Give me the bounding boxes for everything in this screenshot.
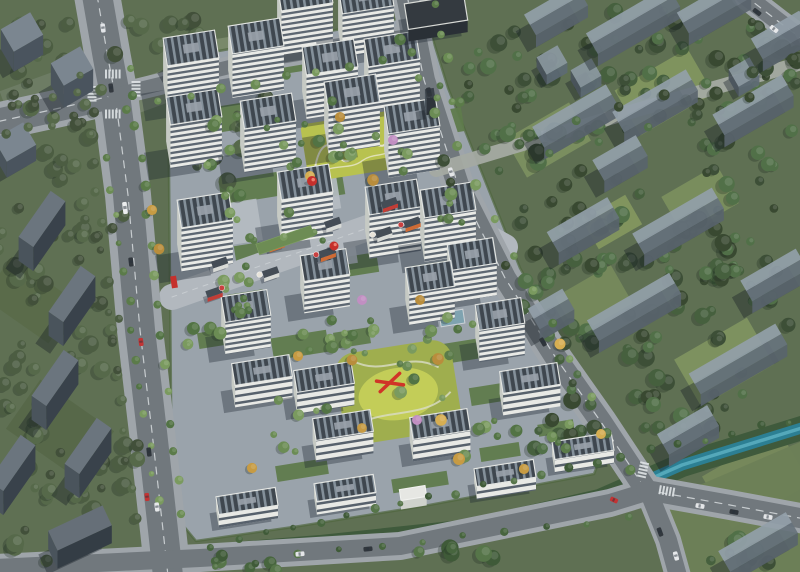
tree-highlight xyxy=(647,343,653,349)
tree-highlight xyxy=(724,404,728,408)
crosswalk-bar xyxy=(108,110,110,119)
tree-highlight xyxy=(277,397,282,402)
umbrella xyxy=(257,272,263,278)
tree-highlight xyxy=(641,330,648,337)
tree-highlight xyxy=(482,482,485,485)
tree-highlight xyxy=(339,113,344,118)
tree-highlight xyxy=(619,208,628,217)
tree-highlight xyxy=(548,150,552,154)
tree-highlight xyxy=(269,558,275,564)
tree-highlight xyxy=(605,429,610,434)
tree-highlight xyxy=(790,126,796,132)
crosswalk-bar xyxy=(132,84,141,86)
tree-highlight xyxy=(721,265,729,273)
tree-highlight xyxy=(523,465,528,470)
tree-highlight xyxy=(788,421,791,424)
building-facade xyxy=(233,46,284,98)
tree-highlight xyxy=(458,454,464,460)
tree-highlight xyxy=(11,103,15,107)
tree-highlight xyxy=(370,318,374,322)
tree-highlight xyxy=(650,446,654,450)
car-windshield xyxy=(155,505,159,508)
tree-highlight xyxy=(503,529,507,533)
tree-highlight xyxy=(440,415,446,421)
tree-highlight xyxy=(338,152,343,157)
tree-highlight xyxy=(446,313,451,318)
car-windshield xyxy=(145,495,149,497)
crosswalk-bar xyxy=(112,110,114,119)
tree-highlight xyxy=(164,360,169,365)
tree-highlight xyxy=(17,101,21,105)
tree-highlight xyxy=(348,63,353,68)
tree-highlight xyxy=(665,376,673,384)
tree-highlight xyxy=(579,166,585,172)
tree-highlight xyxy=(725,178,733,186)
tree-highlight xyxy=(416,416,421,421)
tree-highlight xyxy=(209,323,215,329)
tree-highlight xyxy=(192,323,198,329)
tree-highlight xyxy=(522,93,528,99)
tree-highlight xyxy=(710,557,715,562)
tree-highlight xyxy=(619,454,623,458)
tree-highlight xyxy=(66,18,73,25)
tree-highlight xyxy=(158,497,162,501)
tree-highlight xyxy=(528,90,535,97)
tree-highlight xyxy=(254,81,259,86)
tree-highlight xyxy=(668,266,672,270)
tree-highlight xyxy=(20,383,26,389)
tree-highlight xyxy=(651,399,659,407)
tree-highlight xyxy=(156,302,160,306)
tree-highlight xyxy=(94,188,99,193)
tree-highlight xyxy=(130,66,134,70)
tree-highlight xyxy=(655,371,664,380)
tree-highlight xyxy=(331,342,337,348)
tree-highlight xyxy=(238,537,242,541)
tree-highlight xyxy=(138,384,141,387)
tree-highlight xyxy=(598,139,602,143)
tree-highlight xyxy=(731,193,738,200)
tree-highlight xyxy=(575,117,579,121)
screenshot-root xyxy=(0,0,800,572)
tree-highlight xyxy=(717,336,723,342)
tree-highlight xyxy=(159,332,163,336)
tree-highlight xyxy=(30,280,35,285)
tree-highlight xyxy=(59,449,64,454)
tree-highlight xyxy=(382,57,386,61)
tree-highlight xyxy=(399,361,402,364)
umbrella xyxy=(398,222,404,228)
car-windshield xyxy=(366,547,369,551)
tree-highlight xyxy=(541,444,546,449)
car-windshield xyxy=(109,86,113,89)
tree-highlight xyxy=(477,424,483,430)
tree-highlight xyxy=(100,363,109,372)
tree-highlight xyxy=(788,70,795,77)
tree-highlight xyxy=(27,79,32,84)
tree-highlight xyxy=(447,215,452,220)
tree-highlight xyxy=(623,76,629,82)
tree-highlight xyxy=(111,224,116,229)
tree-highlight xyxy=(755,22,763,30)
tree-highlight xyxy=(576,371,580,375)
tree-highlight xyxy=(731,432,735,436)
tree-highlight xyxy=(115,213,118,216)
tree-highlight xyxy=(448,352,453,357)
car-windshield xyxy=(147,450,151,453)
tree-highlight xyxy=(546,524,549,527)
tree-highlight xyxy=(12,91,17,96)
tree-highlight xyxy=(249,234,254,239)
tree-highlight xyxy=(151,472,154,475)
tree-highlight xyxy=(313,230,317,234)
tree-highlight xyxy=(120,396,125,401)
tree-highlight xyxy=(43,277,51,285)
tree-highlight xyxy=(316,408,319,411)
tree-highlight xyxy=(125,106,129,110)
tree-highlight xyxy=(167,389,171,393)
tree-highlight xyxy=(486,60,494,68)
tree-highlight xyxy=(246,303,249,306)
tree-highlight xyxy=(569,356,573,360)
tree-highlight xyxy=(110,325,116,331)
tree-highlight xyxy=(251,464,256,469)
tree-highlight xyxy=(456,142,461,147)
tree-highlight xyxy=(304,122,307,125)
tree-highlight xyxy=(236,217,239,220)
tree-highlight xyxy=(629,466,634,471)
tree-highlight xyxy=(27,124,32,129)
tree-highlight xyxy=(135,514,140,519)
tree-highlight xyxy=(638,46,642,50)
tree-highlight xyxy=(93,159,98,164)
car xyxy=(363,546,372,552)
tree-highlight xyxy=(238,303,242,307)
tree-highlight xyxy=(715,52,723,60)
tree-highlight xyxy=(247,307,251,311)
car xyxy=(138,338,144,347)
tree-highlight xyxy=(751,68,757,74)
tree-highlight xyxy=(436,95,440,99)
tree-highlight xyxy=(483,144,489,150)
tree-highlight xyxy=(734,234,739,239)
tree-highlight xyxy=(275,566,281,572)
tree-highlight xyxy=(296,158,301,163)
crosswalk-bar xyxy=(88,96,97,98)
tree-highlight xyxy=(73,113,77,117)
tree-highlight xyxy=(758,177,763,182)
tree-highlight xyxy=(245,263,249,267)
tree-highlight xyxy=(450,544,456,550)
tree-highlight xyxy=(157,98,161,102)
tree-highlight xyxy=(344,330,347,333)
tree-highlight xyxy=(523,205,528,210)
tree-highlight xyxy=(49,471,54,476)
tree-highlight xyxy=(516,52,521,57)
tree-highlight xyxy=(133,122,138,127)
crosswalk-bar xyxy=(119,70,121,79)
tree-highlight xyxy=(206,162,210,166)
sphere-highlight xyxy=(311,178,315,182)
tree-highlight xyxy=(150,443,153,446)
tree-highlight xyxy=(101,219,106,224)
tree-highlight xyxy=(751,19,755,23)
tree-highlight xyxy=(239,309,245,315)
tree-highlight xyxy=(51,123,55,127)
tree-highlight xyxy=(564,179,571,186)
umbrella xyxy=(219,285,225,291)
tree-highlight xyxy=(569,429,576,436)
tree-highlight xyxy=(656,34,662,40)
tree-highlight xyxy=(169,421,173,425)
tree-highlight xyxy=(331,97,336,102)
tree-highlight xyxy=(515,426,521,432)
tree-highlight xyxy=(21,341,25,345)
tree-highlight xyxy=(99,298,106,305)
tree-highlight xyxy=(142,411,146,415)
tree-highlight xyxy=(497,36,506,45)
tree-highlight xyxy=(84,216,89,221)
tree-highlight xyxy=(654,332,660,338)
tree-highlight xyxy=(93,108,98,113)
tree-highlight xyxy=(596,460,601,465)
car-windshield xyxy=(101,26,105,29)
tree-highlight xyxy=(222,276,228,282)
tree-highlight xyxy=(712,165,718,171)
tree-highlight xyxy=(122,268,126,272)
tree-highlight xyxy=(498,167,502,171)
umbrella xyxy=(370,232,376,238)
tree-highlight xyxy=(297,411,303,417)
tree-highlight xyxy=(439,83,442,86)
car-windshield xyxy=(129,260,133,263)
tree-highlight xyxy=(552,320,556,324)
tree-highlight xyxy=(609,254,615,260)
tree-highlight xyxy=(648,67,656,75)
tree-highlight xyxy=(644,423,649,428)
tree-highlight xyxy=(706,169,710,173)
tree-highlight xyxy=(705,79,710,84)
building-facade xyxy=(389,126,440,178)
tree-highlight xyxy=(472,321,476,325)
tree-highlight xyxy=(592,421,600,429)
tree-highlight xyxy=(508,86,513,91)
tree-highlight xyxy=(537,428,541,432)
tree-highlight xyxy=(765,256,772,263)
tree-highlight xyxy=(34,96,38,100)
tree-highlight xyxy=(228,146,233,151)
tree-highlight xyxy=(504,262,509,267)
tree-highlight xyxy=(131,92,136,97)
tree-highlight xyxy=(214,564,217,567)
tree-highlight xyxy=(109,187,113,191)
tree-highlight xyxy=(572,380,576,384)
tree-highlight xyxy=(106,155,110,159)
tree-highlight xyxy=(116,367,120,371)
tree-highlight xyxy=(180,511,184,515)
tree-highlight xyxy=(372,175,378,181)
crosswalk-bar xyxy=(115,70,117,79)
tree-highlight xyxy=(756,147,763,154)
tree-highlight xyxy=(39,20,44,25)
tree-highlight xyxy=(17,352,24,359)
tree-highlight xyxy=(361,424,366,429)
tree-highlight xyxy=(794,79,800,85)
tree-highlight xyxy=(10,404,15,409)
aerial-masterplan-render xyxy=(0,0,800,572)
tree-highlight xyxy=(151,206,156,211)
tree-highlight xyxy=(551,433,556,438)
tree-highlight xyxy=(124,458,128,462)
tree-highlight xyxy=(474,181,480,187)
tree-highlight xyxy=(338,547,341,550)
tree-highlight xyxy=(75,119,82,126)
tree-highlight xyxy=(118,316,122,320)
tree-highlight xyxy=(546,277,553,284)
tree-highlight xyxy=(447,54,452,59)
tree-highlight xyxy=(442,395,445,398)
tree-highlight xyxy=(285,72,289,76)
tree-highlight xyxy=(68,231,74,237)
tree-highlight xyxy=(2,379,9,386)
tree-highlight xyxy=(60,155,67,162)
tree-highlight xyxy=(329,335,334,340)
tree-highlight xyxy=(399,35,405,41)
tree-highlight xyxy=(144,182,149,187)
tree-highlight xyxy=(111,339,116,344)
tree-highlight xyxy=(317,136,323,142)
crosswalk-bar xyxy=(132,88,141,90)
tree-highlight xyxy=(748,93,753,98)
tree-highlight xyxy=(696,110,701,115)
tree-highlight xyxy=(214,558,218,562)
tree-highlight xyxy=(599,261,606,268)
tree-highlight xyxy=(773,205,777,209)
tree-highlight xyxy=(322,238,325,241)
tree-highlight xyxy=(220,85,225,90)
crosswalk-bar xyxy=(132,81,141,83)
tree-highlight xyxy=(749,238,753,242)
tree-highlight xyxy=(0,229,5,235)
tree-highlight xyxy=(302,330,308,336)
tree-highlight xyxy=(710,307,715,312)
tree-highlight xyxy=(248,278,253,283)
tree-highlight xyxy=(187,343,190,346)
tree-highlight xyxy=(308,347,312,351)
tree-highlight xyxy=(741,390,746,395)
tree-highlight xyxy=(131,485,135,489)
tree-highlight xyxy=(402,168,407,173)
tree-highlight xyxy=(89,131,93,135)
tree-highlight xyxy=(399,387,405,393)
tree-highlight xyxy=(568,464,573,469)
tree-highlight xyxy=(434,1,438,5)
tree-highlight xyxy=(550,197,556,203)
tree-highlight xyxy=(523,74,530,81)
tree-highlight xyxy=(265,530,268,533)
tree-highlight xyxy=(418,547,424,553)
tree-highlight xyxy=(458,98,463,103)
tree-highlight xyxy=(315,69,319,73)
tree-highlight xyxy=(78,256,83,261)
tree-highlight xyxy=(449,179,454,184)
crosswalk-bar xyxy=(105,110,107,119)
tree-highlight xyxy=(568,421,573,426)
tree-highlight xyxy=(292,525,295,528)
tree-highlight xyxy=(300,141,303,144)
tree-highlight xyxy=(94,233,99,238)
tree-highlight xyxy=(406,362,411,367)
tree-highlight xyxy=(559,340,565,346)
tree-highlight xyxy=(418,75,422,79)
tree-highlight xyxy=(33,364,39,370)
tree-highlight xyxy=(139,20,147,28)
tree-highlight xyxy=(153,272,158,277)
tree-highlight xyxy=(346,513,349,516)
tree-highlight xyxy=(353,349,356,352)
tree-highlight xyxy=(766,158,773,165)
tree-highlight xyxy=(578,203,585,210)
tree-highlight xyxy=(493,418,496,421)
tree-highlight xyxy=(276,117,279,120)
tree-highlight xyxy=(411,345,416,350)
tree-highlight xyxy=(18,204,23,209)
tree-highlight xyxy=(337,125,343,131)
tree-highlight xyxy=(617,103,622,108)
tree-highlight xyxy=(462,533,465,536)
tree-highlight xyxy=(422,540,425,543)
tree-highlight xyxy=(361,296,366,301)
tree-highlight xyxy=(44,40,52,48)
tree-highlight xyxy=(297,352,302,357)
tree-highlight xyxy=(663,91,668,96)
tree-highlight xyxy=(590,260,597,267)
tree-highlight xyxy=(550,414,557,421)
tree-highlight xyxy=(374,505,379,510)
tree-highlight xyxy=(100,485,104,489)
tree-highlight xyxy=(524,275,532,283)
tree-highlight xyxy=(59,174,66,181)
tree-highlight xyxy=(325,404,330,409)
tree-highlight xyxy=(141,155,145,159)
tree-highlight xyxy=(282,443,288,449)
tree-highlight xyxy=(442,156,448,162)
tree-highlight xyxy=(413,375,419,381)
sphere-highlight xyxy=(334,243,337,246)
tree-highlight xyxy=(449,189,455,195)
tree-highlight xyxy=(135,453,143,461)
tree-highlight xyxy=(273,432,276,435)
tree-highlight xyxy=(5,130,10,135)
tree-highlight xyxy=(760,422,764,426)
tree-highlight xyxy=(351,331,356,336)
tree-highlight xyxy=(433,109,438,114)
crosswalk-bar xyxy=(119,110,121,119)
tree-highlight xyxy=(624,85,630,91)
tree-highlight xyxy=(229,209,234,214)
tree-highlight xyxy=(520,217,527,224)
red-sphere-sculpture xyxy=(307,176,317,186)
tree-highlight xyxy=(343,142,347,146)
tree-highlight xyxy=(212,121,218,127)
tree-highlight xyxy=(182,19,188,25)
tree-highlight xyxy=(382,544,386,548)
tree-highlight xyxy=(44,146,52,154)
tree-highlight xyxy=(705,439,708,442)
tree-highlight xyxy=(482,547,490,555)
tree-highlight xyxy=(78,359,86,367)
tree-highlight xyxy=(513,478,516,481)
